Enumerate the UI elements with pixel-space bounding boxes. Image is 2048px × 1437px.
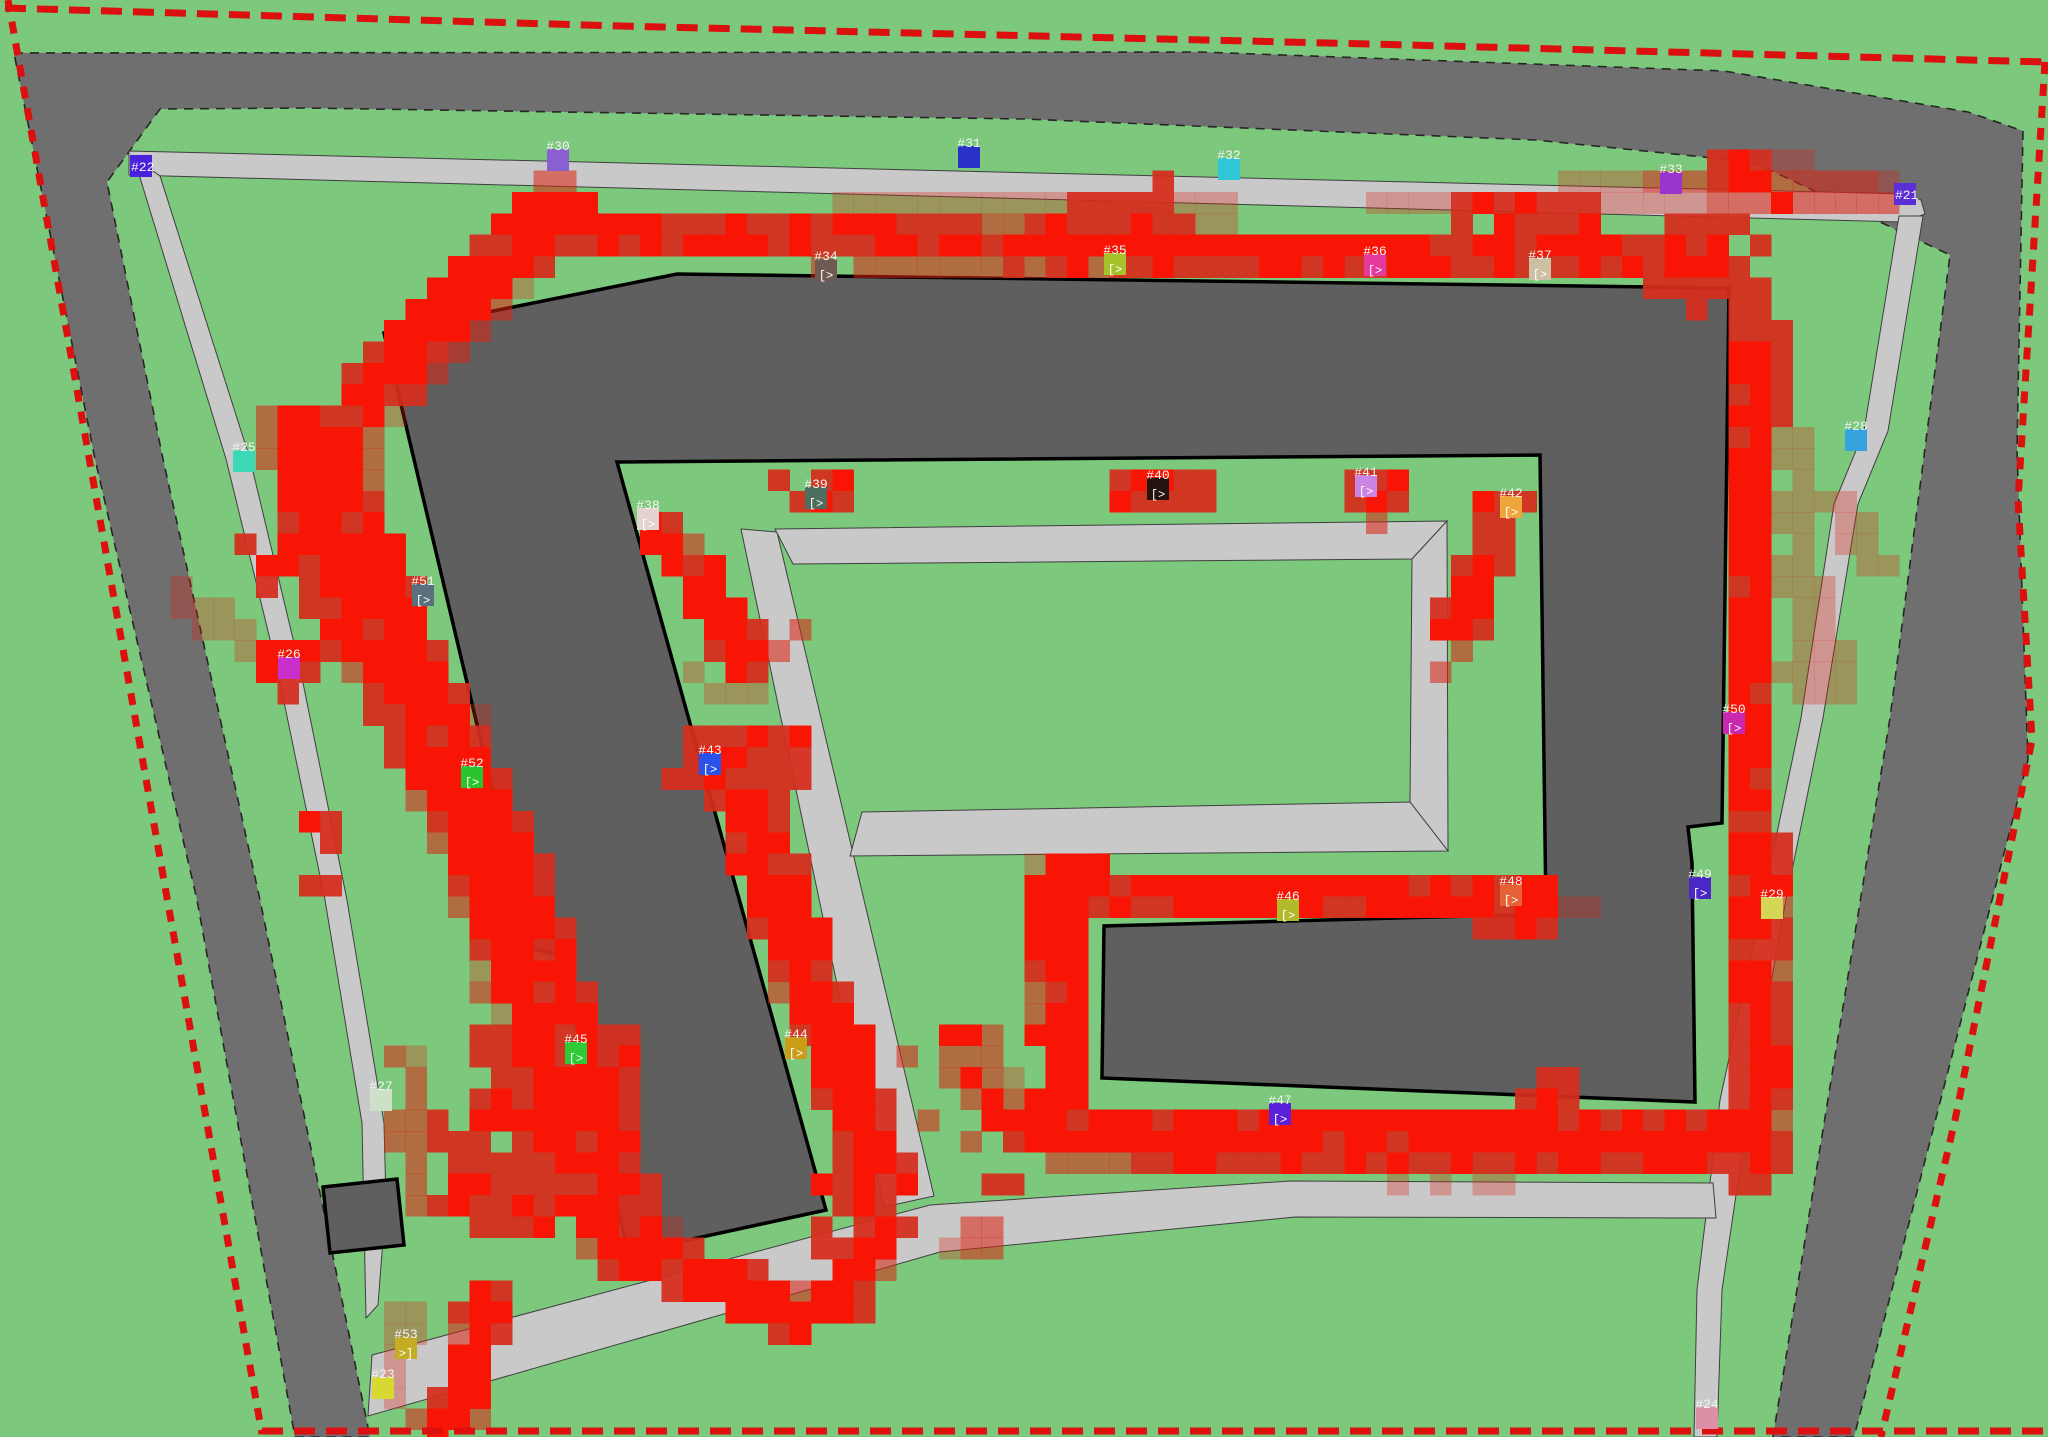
svg-text:[>: [> [1368,264,1382,278]
svg-text:[>: [> [1273,1113,1287,1127]
svg-text:#24: #24 [1695,1397,1719,1412]
svg-text:[>: [> [416,594,430,608]
svg-text:#41: #41 [1354,465,1378,480]
svg-text:#28: #28 [1844,419,1867,434]
svg-text:#29: #29 [1760,887,1783,902]
svg-text:#26: #26 [277,647,300,662]
svg-text:[>: [> [641,518,655,532]
svg-text:#48: #48 [1499,874,1522,889]
svg-text:#35: #35 [1103,243,1126,258]
svg-text:[>: [> [1359,485,1373,499]
svg-text:#47: #47 [1268,1093,1291,1108]
svg-text:[>: [> [1504,894,1518,908]
svg-text:#34: #34 [814,249,838,264]
svg-text:#23: #23 [371,1367,394,1382]
svg-text:[>: [> [465,776,479,790]
svg-text:#30: #30 [546,139,569,154]
svg-text:#25: #25 [232,440,255,455]
svg-text:[>: [> [1533,268,1547,282]
svg-text:#46: #46 [1276,889,1299,904]
svg-text:#21: #21 [1895,188,1919,203]
svg-text:#33: #33 [1659,162,1682,177]
svg-text:[>: [> [1727,722,1741,736]
svg-text:#22: #22 [131,160,154,175]
svg-text:[>: [> [703,763,717,777]
svg-text:#42: #42 [1499,486,1522,501]
svg-text:#44: #44 [784,1027,808,1042]
svg-text:#52: #52 [460,756,483,771]
svg-text:[>: [> [1151,488,1165,502]
svg-text:>]: >] [399,1347,413,1361]
svg-text:[>: [> [819,269,833,283]
svg-text:[>: [> [1504,506,1518,520]
svg-text:[>: [> [1693,887,1707,901]
svg-text:#51: #51 [411,574,435,589]
svg-text:#49: #49 [1688,867,1711,882]
svg-text:#43: #43 [698,743,721,758]
svg-text:[>: [> [1281,909,1295,923]
svg-text:[>: [> [809,497,823,511]
svg-text:#37: #37 [1528,248,1551,263]
svg-text:[>: [> [569,1052,583,1066]
svg-text:#40: #40 [1146,468,1169,483]
svg-text:#45: #45 [564,1032,587,1047]
svg-text:#50: #50 [1722,702,1745,717]
svg-text:#38: #38 [636,498,659,513]
svg-text:#39: #39 [804,477,827,492]
svg-text:[>: [> [1108,263,1122,277]
svg-text:#53: #53 [394,1327,417,1342]
svg-text:[>: [> [789,1047,803,1061]
svg-text:#31: #31 [957,136,981,151]
svg-text:#27: #27 [369,1079,392,1094]
svg-text:#36: #36 [1363,244,1386,259]
svg-text:#32: #32 [1217,148,1240,163]
